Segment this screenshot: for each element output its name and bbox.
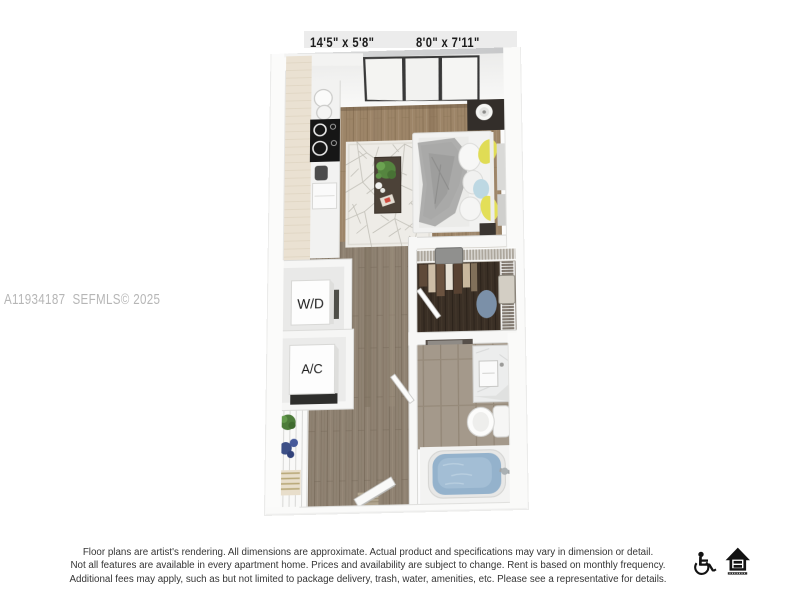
svg-text:W/D: W/D bbox=[297, 296, 324, 312]
svg-text:A/C: A/C bbox=[301, 361, 323, 376]
